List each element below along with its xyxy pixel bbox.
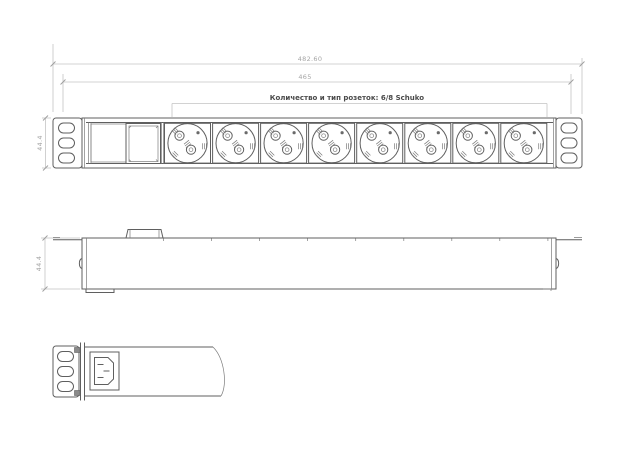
contact-hole <box>271 131 280 140</box>
cable-tab <box>126 230 163 239</box>
screw <box>389 131 392 134</box>
mounting-hole <box>59 153 75 163</box>
dim-overall-width-text: 482.60 <box>298 55 323 63</box>
screw <box>533 131 536 134</box>
contact-hole <box>463 131 472 140</box>
schuko-socket <box>165 123 211 163</box>
side-view: 44.4 <box>35 230 582 293</box>
dim-side-height-text: 44.4 <box>35 256 43 272</box>
schuko-socket <box>405 123 451 163</box>
mounting-hole <box>58 352 74 362</box>
mounting-hole <box>59 123 75 133</box>
technical-drawing-page: 482.60 465 Количество и тип розеток: 6/8… <box>0 0 624 460</box>
mounting-hole <box>561 123 577 133</box>
schuko-socket <box>213 123 259 163</box>
end-view <box>53 343 224 401</box>
panel-seams <box>164 239 548 242</box>
contact-hole <box>415 131 424 140</box>
rack-ear-end <box>53 346 80 397</box>
schuko-socket <box>357 123 403 163</box>
contact-hole <box>175 131 184 140</box>
mounting-hole <box>58 367 74 377</box>
schuko-socket <box>501 123 547 163</box>
mounting-hole <box>561 138 577 148</box>
dim-side-height: 44.4 <box>35 236 80 292</box>
c14-inlet <box>90 352 119 390</box>
screw <box>437 131 440 134</box>
contact-hole <box>367 131 376 140</box>
sockets-note-text: Количество и тип розеток: 6/8 Schuko <box>270 94 424 102</box>
contact-hole <box>511 131 520 140</box>
chassis-end <box>81 343 225 401</box>
schuko-socket <box>453 123 499 163</box>
sockets-group <box>165 123 547 163</box>
ear-latch <box>75 348 81 353</box>
breaker-window <box>126 124 161 164</box>
dim-front-height: 44.4 <box>36 116 51 171</box>
front-view: 482.60 465 Количество и тип розеток: 6/8… <box>36 44 585 171</box>
mounting-hole <box>59 138 75 148</box>
screw <box>341 131 344 134</box>
schuko-socket <box>309 123 355 163</box>
contact-hole <box>319 131 328 140</box>
blank-plate <box>91 124 126 162</box>
rack-ear-right <box>556 118 582 168</box>
mounting-hole <box>58 382 74 392</box>
sockets-note: Количество и тип розеток: 6/8 Schuko <box>172 94 547 117</box>
rack-ear-left <box>53 118 82 168</box>
screw <box>293 131 296 134</box>
screw <box>245 131 248 134</box>
ear-latch <box>75 391 81 396</box>
chassis-side <box>53 230 582 293</box>
dim-front-height-text: 44.4 <box>36 135 44 151</box>
bottom-notch <box>86 289 114 293</box>
dim-mounting-width-text: 465 <box>298 73 311 81</box>
mounting-hole <box>561 153 577 163</box>
screw <box>485 131 488 134</box>
screw <box>196 131 199 134</box>
technical-drawing: 482.60 465 Количество и тип розеток: 6/8… <box>0 0 624 460</box>
schuko-socket <box>261 123 307 163</box>
contact-hole <box>223 131 232 140</box>
